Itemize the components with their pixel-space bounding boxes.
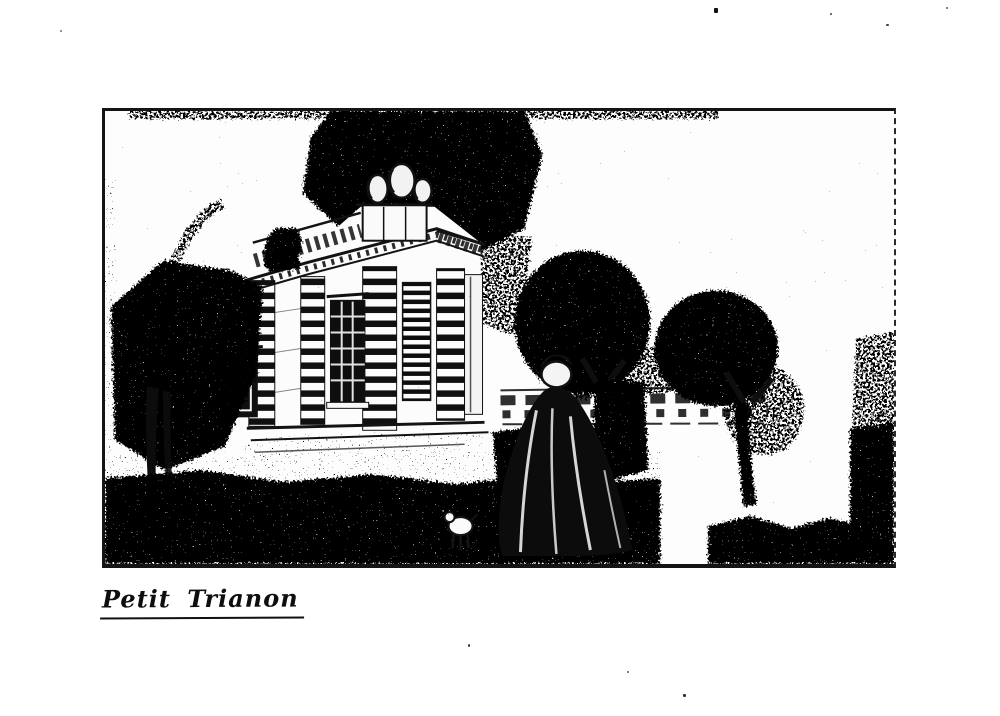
scan-speck bbox=[830, 13, 832, 15]
plate-caption: Petit Trianon bbox=[100, 584, 304, 619]
scan-speck bbox=[886, 24, 889, 26]
plate-grain bbox=[105, 111, 894, 564]
scan-speck bbox=[468, 644, 470, 647]
plate-frame bbox=[102, 108, 896, 568]
scan-speck bbox=[683, 694, 686, 697]
book-page: { "page": { "background": "#ffffff", "in… bbox=[0, 0, 1000, 716]
scan-speck bbox=[946, 7, 948, 9]
scan-speck bbox=[714, 8, 718, 13]
scan-speck bbox=[627, 671, 629, 673]
engraving-illustration bbox=[105, 111, 894, 564]
scan-speck bbox=[60, 30, 62, 32]
